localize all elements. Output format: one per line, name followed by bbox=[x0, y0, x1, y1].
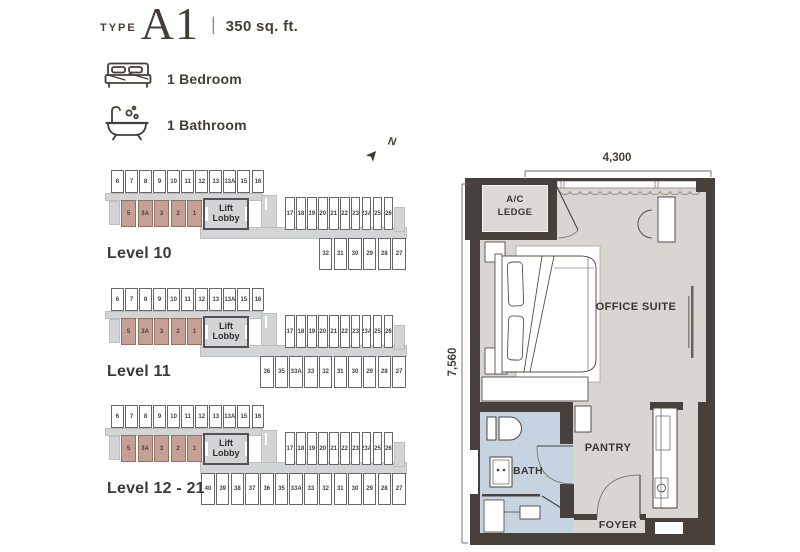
unit-cell: 21 bbox=[329, 197, 339, 230]
unit-cell: 32 bbox=[319, 356, 333, 388]
unit-cell: 13A bbox=[223, 288, 236, 311]
unit-cell: 23A bbox=[362, 315, 372, 348]
unit-cell: 29 bbox=[363, 238, 377, 270]
unit-cell: 36 bbox=[260, 356, 274, 388]
unit-cell-highlighted: 3 bbox=[154, 318, 169, 345]
unit-cell: 10 bbox=[167, 170, 180, 193]
unit-cell: 12 bbox=[195, 170, 208, 193]
unit-cell: 28 bbox=[378, 473, 392, 505]
unit-cell: 38 bbox=[231, 473, 245, 505]
type-label: TYPE bbox=[100, 22, 137, 34]
feature-bathroom: 1 Bathroom bbox=[103, 102, 247, 147]
unit-cell: 21 bbox=[329, 315, 339, 348]
unit-cell: 13 bbox=[209, 288, 222, 311]
unit-cell: 31 bbox=[334, 356, 348, 388]
unit-cell: 29 bbox=[363, 473, 377, 505]
lobby-door bbox=[205, 325, 208, 339]
unit-cell: 36 bbox=[260, 473, 274, 505]
unit-cell: 23A bbox=[362, 432, 372, 465]
level-label: Level 11 bbox=[107, 363, 171, 381]
unit-cell: 32 bbox=[319, 473, 333, 505]
lobby-door bbox=[245, 442, 248, 456]
unit-cell: 37 bbox=[245, 473, 259, 505]
toilet bbox=[487, 417, 522, 440]
unit-cell: 18 bbox=[296, 315, 306, 348]
unit-cell-highlighted: 2 bbox=[171, 435, 186, 462]
unit-cell: 8 bbox=[139, 405, 152, 428]
unit-cell: 16 bbox=[252, 405, 265, 428]
brochure-page: { "title": {"type_label": "TYPE", "unit_… bbox=[0, 0, 800, 552]
room-label-bath: BATH bbox=[500, 465, 556, 477]
unit-cell: 17 bbox=[285, 432, 295, 465]
room-label-pantry: PANTRY bbox=[568, 442, 648, 454]
pillow bbox=[507, 262, 524, 306]
unit-cell-highlighted: 5 bbox=[121, 318, 136, 345]
unit-cell: 30 bbox=[348, 473, 362, 505]
unit-cell: 13A bbox=[223, 170, 236, 193]
bathtub-icon bbox=[103, 102, 153, 147]
lobby-door bbox=[205, 442, 208, 456]
unit-cell: 26 bbox=[384, 197, 394, 230]
unit-cell: 19 bbox=[307, 197, 317, 230]
unit-cell: 7 bbox=[125, 170, 138, 193]
room-label-ac-ledge: A/C LEDGE bbox=[489, 194, 541, 220]
unit-cell: 15 bbox=[237, 170, 250, 193]
unit-cell: 8 bbox=[139, 288, 152, 311]
corridor bbox=[109, 201, 120, 225]
unit-cell-highlighted: 1 bbox=[187, 318, 202, 345]
unit-cell: 7 bbox=[125, 288, 138, 311]
unit-cell: 27 bbox=[392, 238, 406, 270]
unit-cell: 10 bbox=[167, 405, 180, 428]
unit-cell: 18 bbox=[296, 197, 306, 230]
unit-cell: 10 bbox=[167, 288, 180, 311]
unit-cell: 13A bbox=[223, 405, 236, 428]
unit-cell: 17 bbox=[285, 197, 295, 230]
unit-cell-highlighted: 5 bbox=[121, 435, 136, 462]
unit-cell: 23 bbox=[351, 432, 361, 465]
unit-cell: 12 bbox=[195, 405, 208, 428]
lift-lobby: Lift Lobby bbox=[203, 433, 249, 465]
unit-cell-highlighted: 3A bbox=[138, 318, 153, 345]
unit-cell: 19 bbox=[307, 315, 317, 348]
unit-cell: 22 bbox=[340, 432, 350, 465]
unit-cell: 25 bbox=[373, 432, 383, 465]
unit-cell: 16 bbox=[252, 288, 265, 311]
window bbox=[557, 181, 700, 188]
unit-cell-highlighted: 3 bbox=[154, 200, 169, 227]
unit-cell: 32 bbox=[319, 238, 333, 270]
separator: | bbox=[211, 14, 216, 35]
unit-cell: 28 bbox=[378, 238, 392, 270]
unit-cell-highlighted: 2 bbox=[171, 200, 186, 227]
corridor bbox=[394, 325, 405, 350]
unit-cell: 22 bbox=[340, 197, 350, 230]
feature-bedroom-label: 1 Bedroom bbox=[167, 71, 242, 87]
corridor bbox=[109, 319, 120, 343]
unit-cell: 11 bbox=[181, 405, 194, 428]
level-label: Level 10 bbox=[107, 245, 172, 263]
unit-cell: 25 bbox=[373, 197, 383, 230]
unit-cell: 22 bbox=[340, 315, 350, 348]
unit-cell: 19 bbox=[307, 432, 317, 465]
unit-cell: 20 bbox=[318, 197, 328, 230]
unit-cell-highlighted: 5 bbox=[121, 200, 136, 227]
unit-cell: 18 bbox=[296, 432, 306, 465]
unit-area: 350 sq. ft. bbox=[226, 18, 299, 35]
unit-cell: 23 bbox=[351, 315, 361, 348]
unit-cell: 11 bbox=[181, 288, 194, 311]
unit-cell: 27 bbox=[392, 473, 406, 505]
unit-cell: 21 bbox=[329, 432, 339, 465]
feature-bathroom-label: 1 Bathroom bbox=[167, 117, 247, 133]
unit-cell: 31 bbox=[334, 473, 348, 505]
corridor bbox=[394, 442, 405, 467]
unit-cell: 11 bbox=[181, 170, 194, 193]
unit-cell: 35 bbox=[275, 356, 289, 388]
storage-niche bbox=[575, 406, 591, 432]
unit-floor-plan: 4,300 7,560 A/C LEDGE OFFICE SUITE PANTR… bbox=[440, 150, 720, 552]
bed-icon bbox=[103, 60, 153, 97]
unit-cell: 15 bbox=[237, 405, 250, 428]
feature-bedroom: 1 Bedroom bbox=[103, 60, 242, 97]
unit-cell: 16 bbox=[252, 170, 265, 193]
lobby-door bbox=[245, 325, 248, 339]
unit-cell: 26 bbox=[384, 432, 394, 465]
corridor bbox=[394, 207, 405, 232]
unit-cell: 9 bbox=[153, 405, 166, 428]
dimension-width: 4,300 bbox=[577, 152, 657, 164]
north-label: N bbox=[387, 136, 397, 149]
floor-plan-drawing bbox=[440, 150, 720, 552]
unit-code: A1 bbox=[141, 4, 199, 43]
unit-cell: 35 bbox=[275, 473, 289, 505]
unit-cell: 30 bbox=[348, 238, 362, 270]
unit-cell: 20 bbox=[318, 315, 328, 348]
unit-cell: 8 bbox=[139, 170, 152, 193]
room-label-office-suite: OFFICE SUITE bbox=[590, 301, 682, 313]
lift-lobby: Lift Lobby bbox=[203, 198, 249, 230]
unit-cell-highlighted: 3 bbox=[154, 435, 169, 462]
shower-tray bbox=[484, 500, 504, 532]
unit-cell: 33A bbox=[289, 356, 303, 388]
dimension-height: 7,560 bbox=[447, 332, 459, 392]
north-arrow-icon bbox=[361, 144, 383, 165]
pillow bbox=[507, 316, 524, 360]
unit-cell: 6 bbox=[111, 288, 124, 311]
unit-cell: 13 bbox=[209, 405, 222, 428]
corridor bbox=[109, 436, 120, 460]
unit-cell-highlighted: 2 bbox=[171, 318, 186, 345]
level-label: Level 12 - 21 bbox=[107, 480, 205, 498]
unit-cell: 28 bbox=[378, 356, 392, 388]
unit-cell: 17 bbox=[285, 315, 295, 348]
unit-cell: 33 bbox=[304, 473, 318, 505]
desk bbox=[658, 197, 675, 242]
level-plan-12-21: 67891011121313A151653A321Lift Lobby17181… bbox=[105, 400, 417, 510]
unit-cell: 6 bbox=[111, 405, 124, 428]
unit-cell: 27 bbox=[392, 356, 406, 388]
entry-threshold bbox=[655, 522, 683, 534]
unit-cell: 15 bbox=[237, 288, 250, 311]
door-slot bbox=[265, 198, 267, 210]
unit-cell: 13 bbox=[209, 170, 222, 193]
pantry-counter bbox=[653, 408, 677, 508]
wardrobe-cabinet bbox=[482, 377, 588, 401]
unit-cell-highlighted: 3A bbox=[138, 200, 153, 227]
unit-cell: 23A bbox=[362, 197, 372, 230]
unit-cell: 9 bbox=[153, 288, 166, 311]
unit-cell: 33 bbox=[304, 356, 318, 388]
unit-cell: 7 bbox=[125, 405, 138, 428]
unit-cell: 31 bbox=[334, 238, 348, 270]
wall-tv bbox=[691, 286, 694, 358]
unit-cell: 6 bbox=[111, 170, 124, 193]
unit-cell-highlighted: 1 bbox=[187, 200, 202, 227]
door-slot bbox=[265, 316, 267, 328]
unit-cell: 26 bbox=[384, 315, 394, 348]
unit-type-header: TYPE A1 | 350 sq. ft. bbox=[100, 4, 298, 43]
lift-lobby: Lift Lobby bbox=[203, 316, 249, 348]
unit-cell: 33A bbox=[289, 473, 303, 505]
unit-cell-highlighted: 1 bbox=[187, 435, 202, 462]
headboard bbox=[495, 254, 502, 374]
unit-cell-highlighted: 3A bbox=[138, 435, 153, 462]
lobby-door bbox=[205, 207, 208, 221]
room-label-foyer: FOYER bbox=[580, 519, 656, 531]
door-slot bbox=[265, 433, 267, 445]
level-plan-10: 67891011121313A151653A321Lift Lobby17181… bbox=[105, 165, 417, 275]
unit-cell: 30 bbox=[348, 356, 362, 388]
unit-cell: 20 bbox=[318, 432, 328, 465]
lobby-door bbox=[245, 207, 248, 221]
unit-cell: 9 bbox=[153, 170, 166, 193]
unit-cell: 39 bbox=[216, 473, 230, 505]
unit-cell: 25 bbox=[373, 315, 383, 348]
level-plan-11: 67891011121313A151653A321Lift Lobby17181… bbox=[105, 283, 417, 393]
bed bbox=[495, 254, 596, 374]
unit-cell: 29 bbox=[363, 356, 377, 388]
unit-cell: 23 bbox=[351, 197, 361, 230]
unit-cell: 12 bbox=[195, 288, 208, 311]
